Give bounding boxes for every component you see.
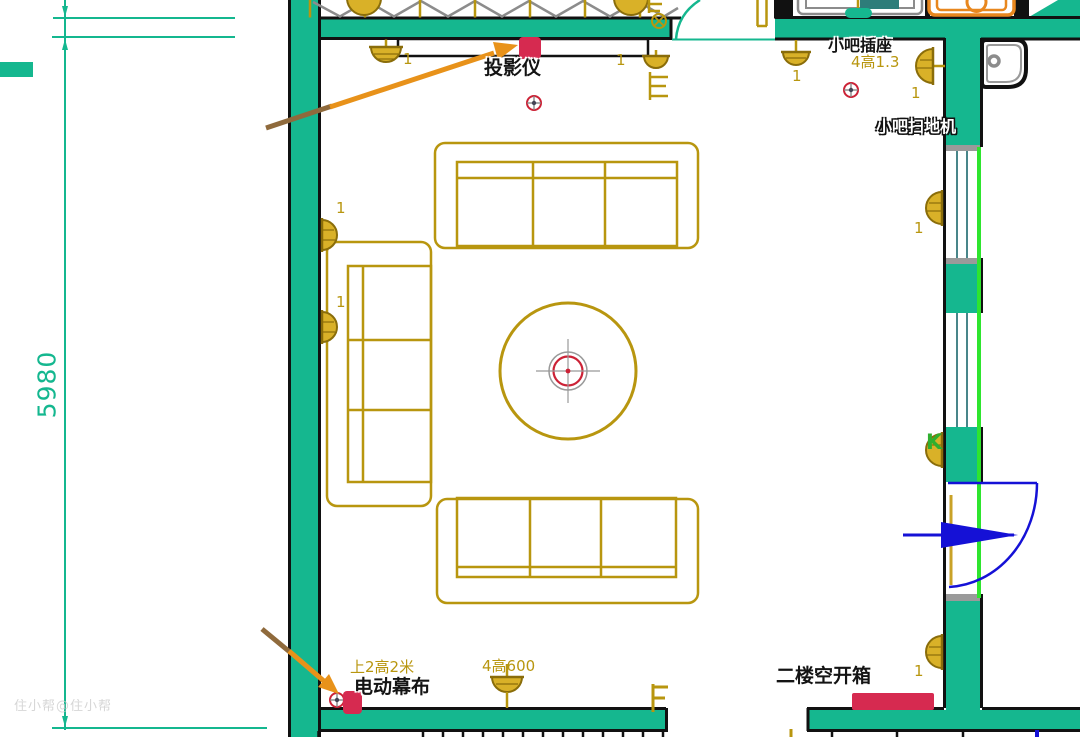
wall-sconce-icon xyxy=(322,218,337,252)
label-bar-socket-spec: 4高1.3 xyxy=(851,55,899,70)
bar-desk xyxy=(798,0,922,18)
bar-stool xyxy=(845,8,872,18)
lamp-count-label: 1 xyxy=(336,201,346,216)
dome-lamp-icon xyxy=(781,40,811,65)
sofa-top xyxy=(435,143,698,248)
label-breaker-box: 二楼空开箱 xyxy=(776,667,871,686)
lamp-count-label: 1 xyxy=(911,86,921,101)
lamp-count-label: 1 xyxy=(914,664,924,679)
dimension-value: 5980 xyxy=(35,330,60,440)
label-motor-screen: 电动幕布 xyxy=(354,678,430,697)
floorplan-canvas: 投影仪 小吧插座 4高1.3 小吧扫地机 上2高2米 电动幕布 4高600 二楼… xyxy=(0,0,1080,737)
target-symbol-icon xyxy=(330,693,344,707)
bar-sink xyxy=(929,0,1014,15)
target-symbol-icon xyxy=(527,96,541,110)
monitor xyxy=(860,0,899,9)
label-screen-spec: 上2高2米 xyxy=(350,660,414,675)
wall-sconce-icon xyxy=(926,190,942,226)
center-crosshair-icon xyxy=(536,339,600,403)
door-sill xyxy=(946,594,980,601)
projector-marker xyxy=(519,37,541,59)
window-sill xyxy=(946,145,980,151)
furniture xyxy=(327,143,698,603)
label-robot-vacuum: 小吧扫地机 xyxy=(876,119,956,135)
wall-sconce-icon xyxy=(916,47,945,85)
target-symbol-icon xyxy=(844,83,858,97)
sofa-bottom xyxy=(437,498,698,603)
label-bar-socket: 小吧插座 xyxy=(828,38,892,54)
sofa-left xyxy=(327,242,431,506)
lamp-count-label: 1 xyxy=(336,295,346,310)
label-projector: 投影仪 xyxy=(484,59,541,78)
left-edge-wall-stub xyxy=(0,62,33,77)
walls xyxy=(0,0,1080,737)
right-door xyxy=(903,483,1037,587)
window-sill xyxy=(946,258,980,264)
ceiling-lamp-icon xyxy=(347,0,381,15)
label-door-lamp-k: K xyxy=(926,432,942,453)
lamp-count-label: 1 xyxy=(616,53,626,68)
wall-sconce-icon xyxy=(322,310,337,344)
lamp-count-label: 1 xyxy=(914,221,924,236)
robot-vacuum-dock xyxy=(982,40,1026,87)
lamp-count-label: 1 xyxy=(403,52,413,67)
dome-lamp-switch-icon xyxy=(642,50,670,100)
label-floor-lamp-spec: 4高600 xyxy=(482,659,535,674)
truss xyxy=(310,0,678,18)
floorplan-drawing xyxy=(0,0,1080,737)
breaker-box-marker xyxy=(852,693,934,710)
ceiling-lamp-icon xyxy=(614,0,648,15)
top-doorway xyxy=(672,0,775,40)
dimension-lines xyxy=(52,0,267,730)
wall-sconce-icon xyxy=(926,634,942,670)
lamp-count-label: 1 xyxy=(792,69,802,84)
watermark: 住小帮@住小帮 xyxy=(14,700,112,713)
